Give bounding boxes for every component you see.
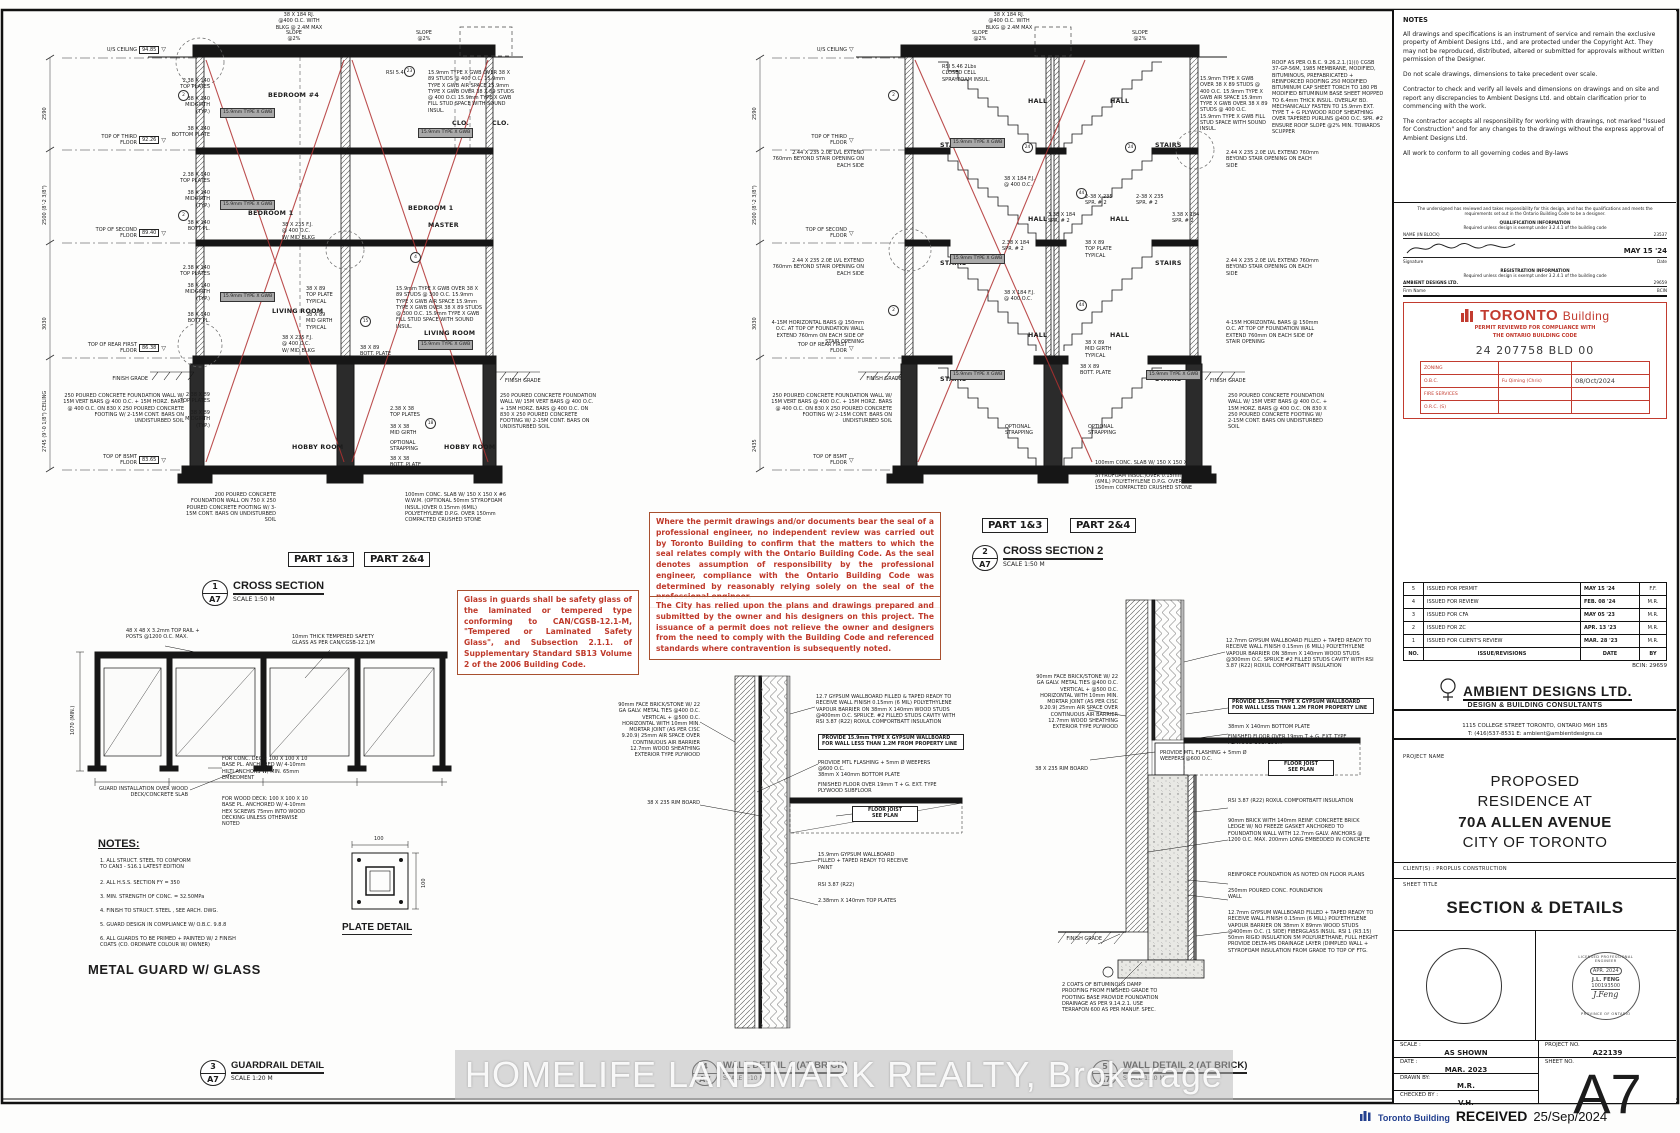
tb-note-5: All work to conform to all governing cod… [1403, 150, 1667, 158]
pe-seal-signature: J.Feng [1579, 990, 1633, 999]
cs1-slab-note: 100mm CONC. SLAB W/ 150 X 150 X #6 W.W.M… [405, 492, 515, 523]
red-note-glass-guards: Glass in guards shall be safety glass of… [457, 590, 639, 675]
wd1-bottom-plate-note: 38mm X 140mm BOTTOM PLATE [818, 772, 938, 778]
plate-dim-top: 100 [374, 836, 384, 842]
cs2-spr235-2: 2-38 X 235 SPR. # 2 [1136, 194, 1184, 207]
wd2-reinforce-note: REINFORCE FOUNDATION AS NOTED ON FLOOR P… [1228, 872, 1368, 878]
room-label-hobby-r: HOBBY ROOM [444, 444, 495, 452]
cs2-demising-wall-spec: 15.9mm TYPE X GWB OVER 38 X 89 STUDS @ 4… [1200, 76, 1268, 132]
wd2-provide-typex-box: PROVIDE 15.9mm TYPE X GYPSUM WALLBOARD F… [1228, 698, 1374, 714]
cs2-dim-4: 2435 [752, 439, 758, 452]
drawing-sheet: 38 X 184 RJ. @400 O.C. WITH BLKG @ 2.4M … [0, 0, 1680, 1133]
callout-bubble: 24 [1022, 142, 1033, 153]
cs2-level-bsmt: TOP OF BSMT FLOOR▽ [795, 454, 854, 467]
cs1-ann-bott-pl-2: 38 X 140 BOTT PL. [150, 312, 210, 325]
guard-note-6: 6. ALL GUARDS TO BE PRIMED + PAINTED W/ … [100, 936, 270, 949]
firm-tagline: DESIGN & BUILDING CONSULTANTS [1403, 702, 1667, 709]
cs1-finish-grade-r: FINISH GRADE [505, 378, 545, 384]
cs2-slope-label-2: SLOPE @2% [1132, 30, 1148, 43]
cs1-ann-top-plates-2: 2.38 X 140 TOP PLATES [150, 172, 210, 185]
metal-guard-heading: METAL GUARD W/ GLASS [88, 962, 261, 977]
cs2-horiz-bars-r: 4-15M HORIZONTAL BARS @ 150mm O.C. AT TO… [1226, 320, 1322, 345]
room-label-bedroom1-l: BEDROOM 1 [248, 210, 293, 218]
plate-dim-right: 100 [421, 878, 427, 888]
cs1-part13-label: PART 1&3 [288, 552, 354, 567]
room-label-hall: HALL [1110, 216, 1129, 224]
cs1-ann-top-plates: 2.38 X 140 TOP PLATES [150, 78, 210, 91]
cs2-midgirth-typ: 38 X 89 MID GIRTH TYPICAL [1085, 340, 1133, 359]
callout-bubble: 18 [425, 418, 436, 429]
cs2-fj184-1: 38 X 184 F.J. @ 400 O.C. [1004, 176, 1054, 189]
wd1-provide-typex-box: PROVIDE 15.9mm TYPE X GYPSUM WALLBOARD F… [818, 734, 964, 750]
wd1-flashing-note: PROVIDE MTL FLASHING + 5mm Ø WEEPERS @60… [818, 760, 938, 773]
checked-by-label: CHECKED BY : [1400, 1092, 1438, 1098]
cs2-gwb-box-3: 15.9mm TYPE X GWB [950, 370, 1005, 380]
firm-address: 1115 COLLEGE STREET TORONTO, ONTARIO M6H… [1403, 722, 1667, 730]
tb-note-1: All drawings and specifications is an in… [1403, 31, 1667, 64]
room-label-hobby-l: HOBBY ROOM [292, 444, 343, 452]
cs2-spr184-3: 2.38 X 184 SPR. # 2 [1002, 240, 1050, 253]
pe-seal: LICENSED PROFESSIONAL ENGINEER APR. 2024… [1572, 952, 1640, 1020]
tb-note-2: Do not scale drawings, dimensions to tak… [1403, 71, 1667, 79]
project-no-label: PROJECT NO. [1545, 1042, 1580, 1048]
callout-bubble: 2 [178, 210, 189, 221]
cs1-level-ceiling: U/S CEILING94.85▽ [85, 46, 166, 54]
cs1-ann-bott-plate89: 38 X 89 BOTT. PLATE [360, 345, 410, 358]
cs1-slope-label: SLOPE @2% [286, 30, 302, 43]
cs1-finish-grade-l: FINISH GRADE [100, 376, 148, 382]
ambient-logo-icon [1438, 678, 1458, 702]
cs1-ann-tp38: 2.38 X 38 TOP PLATES [390, 406, 438, 419]
room-label-bedroom4: BEDROOM #4 [268, 92, 319, 100]
room-label-stairs: STAIRS [1155, 142, 1182, 150]
callout-bubble: 15 [360, 316, 371, 327]
callout-bubble: 44 [1076, 300, 1087, 311]
wd2-brick-ledge-note: 90mm BRICK WITH 140mm REINF. CONCRETE BR… [1228, 818, 1373, 843]
cs2-spr184-2: 3.38 X 184 SPR. # 2 [1172, 212, 1220, 225]
cs2-sprayfoam-note: RSI 5.46 2Lbs CLOSED CELL SPRAYFOAM INSU… [942, 64, 1006, 83]
cs1-ann-top-plates-3: 2.38 X 140 TOP PLATES [150, 265, 210, 278]
cs1-level-third: TOP OF THIRD FLOOR92.26▽ [85, 134, 166, 147]
cs1-foundation-note-l: 250 POURED CONCRETE FOUNDATION WALL W/ 1… [62, 393, 184, 424]
cs2-level-first: TOP OF REAR FIRST FLOOR▽ [795, 342, 854, 355]
stamp-line1: PERMIT REVIEWED FOR COMPLIANCE WITH [1410, 325, 1660, 332]
tb-notes-title: NOTES [1403, 16, 1667, 24]
cs1-ann-midgirth-typ: 38 X 89 MID GIRTH TYPICAL [306, 312, 356, 331]
callout-bubble: 2 [888, 90, 899, 101]
drawn-by-label: DRAWN BY: [1400, 1075, 1430, 1081]
cs1-level-second: TOP OF SECOND FLOOR89.40▽ [85, 227, 166, 240]
toronto-building-stamp: TORONTO Building PERMIT REVIEWED FOR COM… [1403, 302, 1667, 419]
scale-label: SCALE : [1400, 1042, 1421, 1048]
callout-bubble: 2 [888, 305, 899, 316]
cs1-roof-joist-note: 38 X 184 RJ. @400 O.C. WITH BLKG @ 2.4M … [250, 12, 348, 31]
cs1-gwb-box-5: 15.9mm TYPE X GWB [418, 340, 473, 350]
pe-seal-date: APR. 2024 [1590, 967, 1622, 975]
client-row: CLIENT(S) : PROPLUS CONSTRUCTION [1394, 862, 1676, 872]
cs2-optstrap-1: OPTIONAL STRAPPING [1005, 424, 1053, 437]
sheet-no-label: SHEET NO. [1545, 1059, 1574, 1065]
firm-name-value: AMBIENT DESIGNS LTD. [1403, 280, 1458, 285]
plate-detail [352, 841, 419, 909]
cs1-part24-label: PART 2&4 [364, 552, 430, 567]
cs1-dim-2: 2500 (8'-2 3/8") [42, 185, 48, 225]
guard-height-dim: 1070 (MIN.) [70, 706, 76, 735]
room-label-clo-1: CLO. [452, 120, 469, 128]
wd2-found-wall-note: 250mm POURED CONC. FOUNDATION WALL [1228, 888, 1323, 901]
plate-detail-label: PLATE DETAIL [342, 922, 412, 935]
cs2-fj184-2: 38 X 184 F.J. @ 400 O.C. [1004, 290, 1054, 303]
sheet-title-label: SHEET TITLE [1394, 878, 1676, 888]
cs2-optstrap-2: OPTIONAL STRAPPING [1088, 424, 1136, 437]
designer-signature [1403, 241, 1523, 256]
cs2-dim-3: 3030 [752, 317, 758, 330]
received-agency: Toronto Building [1378, 1113, 1450, 1123]
cs1-level-first: TOP OF REAR FIRST FLOOR86.38▽ [85, 342, 166, 355]
revisions-table: 5ISSUED FOR PERMITMAY 15 '24F.F. 4ISSUED… [1403, 582, 1667, 661]
cs1-ann-midgirth-3: 38 X 140 MIDGIRTH (TYP.) [150, 283, 210, 302]
cs1-ann-midgirth-2: 38 X 140 MIDGIRTH (TYP.) [150, 190, 210, 209]
toronto-building-logo: TORONTO Building [1410, 307, 1660, 324]
guard-notes-title: NOTES: [98, 838, 140, 850]
cs1-gwb-box-2: 15.9mm TYPE X GWB [220, 200, 275, 210]
guard-note-4: 4. FINISH TO STRUCT. STEEL , SEE ARCH. D… [100, 908, 260, 914]
cs1-ann-floor-joist: 38 X 235 F.J. @ 400 O.C. W/ MID BLKG [282, 222, 337, 241]
project-line-2: RESIDENCE AT [1403, 792, 1667, 812]
cs2-part13-label: PART 1&3 [982, 518, 1048, 533]
cs2-roof-joist-note: 38 X 184 RJ. @400 O.C. WITH BLKG @ 2.4M … [960, 12, 1058, 31]
tb-note-4: The contractor accepts all responsibilit… [1403, 118, 1667, 143]
guard-note-3: 3. MIN. STRENGTH OF CONC. = 32.50MPa [100, 894, 260, 900]
guard-note-1: 1. ALL STRUCT. STEEL TO CONFORM TO CAN3 … [100, 858, 260, 871]
wd2-dampproof-note: 2 COATS OF BITUMINOUS DAMP PROOFING FROM… [1062, 982, 1160, 1013]
realty-watermark: HOMELIFE LANDMARK REALTY, Brokerage [455, 1050, 1233, 1100]
cs2-bott-plate: 38 X 89 BOTT. PLATE [1080, 364, 1128, 377]
cs1-slope-label-2: SLOPE @2% [416, 30, 432, 43]
bcin-label: BCIN [1657, 288, 1667, 293]
cs1-demising-wall-spec: 15.9mm TYPE X GWB OVER 38 X 89 STUDS @ 4… [428, 70, 516, 114]
wd1-floor-joist-box: FLOOR JOIST SEE PLAN [852, 806, 918, 822]
cs2-finish-grade-r: FINISH GRADE [1210, 378, 1250, 384]
red-note-city-relied: The City has relied upon the plans and d… [649, 596, 941, 660]
toronto-logo-small-icon [1360, 1111, 1372, 1121]
cs1-dim-3: 3030 [42, 317, 48, 330]
room-label-master: MASTER [428, 222, 459, 230]
wd2-floor-joist-box: FLOOR JOIST SEE PLAN [1268, 760, 1334, 776]
cs2-lvl-note-l1: 2.44 X 235 2.0E LVL EXTEND 760mm BEYOND … [772, 150, 864, 169]
project-line-4: CITY OF TORONTO [1403, 833, 1667, 853]
cs2-spr184-1: 3.38 X 184 SPR. # 2 [1048, 212, 1096, 225]
cs2-foundation-note-r: 250 POURED CONCRETE FOUNDATION WALL W/ 1… [1228, 393, 1328, 431]
name-bcin: 23537 [1654, 232, 1667, 237]
permit-number: 24 207758 BLD 00 [1410, 344, 1660, 357]
title-block: NOTES All drawings and specifications is… [1392, 10, 1676, 1103]
bcin-number: BCIN: 29659 [1403, 663, 1667, 669]
cs1-level-bsmt: TOP OF BSMT FLOOR83.65▽ [85, 454, 166, 467]
cs1-dim-4: 2745 (9'-0 1/8") CEILING [42, 391, 48, 452]
cs2-slope-label: SLOPE @2% [972, 30, 988, 43]
cs2-roof-spec: ROOF AS PER O.B.C. 9.26.2.1.(1)(i) CGSB … [1272, 60, 1384, 135]
wd2-gypsum-note: 12.7mm GYPSUM WALLBOARD FILLED + TAPED R… [1226, 638, 1374, 669]
wd2-rim-note: 38 X 235 RIM BOARD [1012, 766, 1088, 772]
title-block-fields: SCALE :AS SHOWN DATE :MAR. 2023 DRAWN BY… [1394, 1040, 1676, 1103]
cross-section-2 [856, 27, 1245, 483]
blank-stamp-circle [1426, 948, 1502, 1024]
cs1-ann-top-plate-typ: 38 X 89 TOP PLATE TYPICAL [306, 286, 356, 305]
firm-bcin-value: 29659 [1654, 280, 1667, 285]
callout-bubble: 2 [178, 90, 189, 101]
callout-bubble: 4 [410, 252, 421, 263]
received-label: RECEIVED [1456, 1108, 1528, 1124]
guard-install-note: GUARD INSTALLATION OVER WOOD DECK/CONCRE… [96, 786, 188, 799]
project-name-label: PROJECT NAME [1394, 754, 1676, 760]
wd2-finish-grade: FINISH GRADE [1050, 936, 1102, 942]
wd1-gypsum-note: 12.7 GYPSUM WALLBOARD FILLED & TAPED REA… [816, 694, 964, 725]
firm-name-label: Firm Name [1403, 288, 1426, 293]
cs2-slab-note: 100mm CONC. SLAB W/ 150 X 150 X #6 W.W.M… [1095, 460, 1195, 491]
guard-note-5: 5. GUARD DESIGN IN COMPLIANCE W/ O.B.C. … [100, 922, 260, 928]
wd1-brick-note: 90mm FACE BRICK/STONE W/ 22 GA GALV. MET… [612, 702, 700, 758]
designer-declaration: The undersigned has reviewed and takes r… [1403, 206, 1667, 217]
wd2-flashing-note: PROVIDE MTL FLASHING + 5mm Ø WEEPERS @60… [1160, 750, 1255, 763]
cs2-gwb-box-2: 15.9mm TYPE X GWB [950, 254, 1005, 264]
cs2-spr235-1: 2-38 X 235 SPR. # 2 [1085, 194, 1133, 207]
wd1-rim-note: 38 X 235 RIM BOARD [612, 800, 700, 806]
guardrail-detail-title: 3A7 GUARDRAIL DETAILSCALE 1:20 M [200, 1060, 324, 1086]
project-line-1: PROPOSED [1403, 772, 1667, 792]
project-no-value: A22139 [1545, 1048, 1670, 1058]
callout-bubble: 23 [404, 66, 415, 77]
wd1-fin-floor-note: FINISHED FLOOR OVER 19mm T + G. EXT. TYP… [818, 782, 948, 795]
guard-wood-deck-note: FOR WOOD DECK: 100 X 100 X 10 BASE PL. A… [222, 796, 308, 827]
scale-value: AS SHOWN [1400, 1048, 1532, 1058]
room-label-hall: HALL [1110, 98, 1129, 106]
cs2-lvl-note-r1: 2.44 X 235 2.0E LVL EXTEND 760mm BEYOND … [1226, 150, 1321, 169]
cs2-gwb-box-4: 15.9mm TYPE X GWB [1146, 370, 1201, 380]
guard-note-2: 2. ALL H.S.S. SECTION FY = 350 [100, 880, 260, 886]
wd1-gwb-paint-note: 15.9mm GYPSUM WALLBOARD FILLED + TAPED R… [818, 852, 910, 871]
cs2-level-second: TOP OF SECOND FLOOR▽ [795, 227, 854, 240]
cs2-gwb-box-1: 15.9mm TYPE X GWB [950, 138, 1005, 148]
received-date: 25/Sep/2024 [1533, 1109, 1607, 1124]
signature-date: MAY 15 '24 [1624, 247, 1667, 256]
cs1-foundation-note-200: 200 POURED CONCRETE FOUNDATION WALL ON 7… [186, 492, 276, 523]
room-label-bedroom1-r: BEDROOM 1 [408, 205, 453, 213]
pe-seal-number: 100193500 [1591, 983, 1620, 990]
cs2-dim-1: 2590 [752, 107, 758, 120]
cs2-finish-grade-l: FINISH GRADE [856, 376, 902, 382]
permit-review-table: ZONING O.B.C.Fu Qiming (Chris)08/Oct/202… [1420, 361, 1650, 414]
wd2-rsi-roxul-note: RSI 3.87 (R22) ROXUL COMFORTBATT INSULAT… [1228, 798, 1368, 804]
room-label-hall: HALL [1028, 216, 1047, 224]
guard-conc-deck-note: FOR CONC. DECK: 100 X 100 X 10 BASE PL. … [222, 756, 308, 781]
room-label-living-r: LIVING ROOM [424, 330, 475, 338]
stamp-line2: THE ONTARIO BUILDING CODE [1410, 333, 1660, 340]
firm-contact: T: (416)537-8531 E: ambient@ambientdesig… [1403, 730, 1667, 738]
room-label-clo-2: CLO. [492, 120, 509, 128]
callout-bubble: 24 [1125, 142, 1136, 153]
guard-glass-note: 10mm THICK TEMPERED SAFETY GLASS AS PER … [292, 634, 392, 647]
guard-toprail-note: 48 X 48 X 3.2mm TOP RAIL + POSTS @1200 O… [126, 628, 208, 641]
project-line-3: 70A ALLEN AVENUE [1403, 813, 1667, 833]
room-label-hall: HALL [1028, 332, 1047, 340]
cs1-ann-bp38: 38 X 38 BOTT. PLATE [390, 456, 438, 469]
date-label: Date [1657, 259, 1667, 264]
cs1-gwb-box-3: 15.9mm TYPE X GWB [220, 292, 275, 302]
received-stamp: Toronto Building RECEIVED 25/Sep/2024 [1360, 1108, 1607, 1124]
cs2-level-ceiling: U/S CEILING▽ [795, 46, 854, 54]
cross-section-2-title: 2A7 CROSS SECTION 2SCALE 1:50 M [972, 545, 1103, 571]
date-value: MAR. 2023 [1400, 1065, 1532, 1075]
wd1-rsi-note: RSI 3.87 (R22) [818, 882, 910, 888]
cs2-lvl-note-r2: 2.44 X 235 2.0E LVL EXTEND 760mm BEYOND … [1226, 258, 1321, 277]
wd2-brick-note: 90mm FACE BRICK/STONE W/ 22 GA GALV. MET… [1030, 674, 1118, 730]
tb-note-3: Contractor to check and verify all level… [1403, 86, 1667, 111]
firm-name: AMBIENT DESIGNS LTD. [1463, 684, 1632, 701]
room-label-stairs: STAIRS [1155, 260, 1182, 268]
cs1-foundation-note-r: 250 POURED CONCRETE FOUNDATION WALL W/ 1… [500, 393, 598, 431]
room-label-hall: HALL [1110, 332, 1129, 340]
cs2-foundation-note-l: 250 POURED CONCRETE FOUNDATION WALL W/ 1… [770, 393, 892, 424]
name-label: NAME (IN BLOCK) [1403, 232, 1440, 237]
wd2-fin-floor-note: FINISHED FLOOR OVER 19mm T + G. EXT. TYP… [1228, 734, 1358, 747]
cs1-gwb-box-1: 15.9mm TYPE X GWB [220, 108, 275, 118]
cross-section-1-title: 1A7 CROSS SECTIONSCALE 1:50 M [202, 580, 324, 606]
cs2-dim-2: 2500 (8'-2 3/8") [752, 185, 758, 225]
sheet-title: SECTION & DETAILS [1394, 898, 1676, 918]
cs1-gwb-box-4: 15.9mm TYPE X GWB [418, 128, 473, 138]
cs2-top-plate-typ: 38 X 89 TOP PLATE TYPICAL [1085, 240, 1133, 259]
cs2-lvl-note-l2: 2.44 X 235 2.0E LVL EXTEND 760mm BEYOND … [772, 258, 864, 277]
checked-by-value: V.H. [1400, 1098, 1532, 1108]
toronto-building-icon [1461, 309, 1476, 322]
wd2-bsmt-wall-note: 12.7mm GYPSUM WALLBOARD FILLED + TAPED R… [1228, 910, 1378, 954]
red-note-engineer-seal: Where the permit drawings and/or documen… [649, 512, 941, 608]
cs1-demising-wall-spec-2: 15.9mm TYPE X GWB OVER 38 X 89 STUDS @ 3… [396, 286, 484, 330]
room-label-hall: HALL [1028, 98, 1047, 106]
cs2-level-third: TOP OF THIRD FLOOR▽ [795, 134, 854, 147]
cs1-ann-optstrap: OPTIONAL STRAPPING [390, 440, 438, 453]
cs1-dim-1: 2590 [42, 107, 48, 120]
wd1-top-plates-note: 2.38mm X 140mm TOP PLATES [818, 898, 910, 904]
cs2-part24-label: PART 2&4 [1070, 518, 1136, 533]
wd2-bottom-plate-note: 38mm X 140mm BOTTOM PLATE [1228, 724, 1348, 730]
cs1-ann-floor-joist-2: 38 X 235 F.J. @ 400 O.C. W/ MID BLKG [282, 335, 337, 354]
signature-label: Signature [1403, 259, 1423, 264]
drawn-by-value: M.R. [1400, 1081, 1532, 1091]
date-label: DATE : [1400, 1059, 1418, 1065]
